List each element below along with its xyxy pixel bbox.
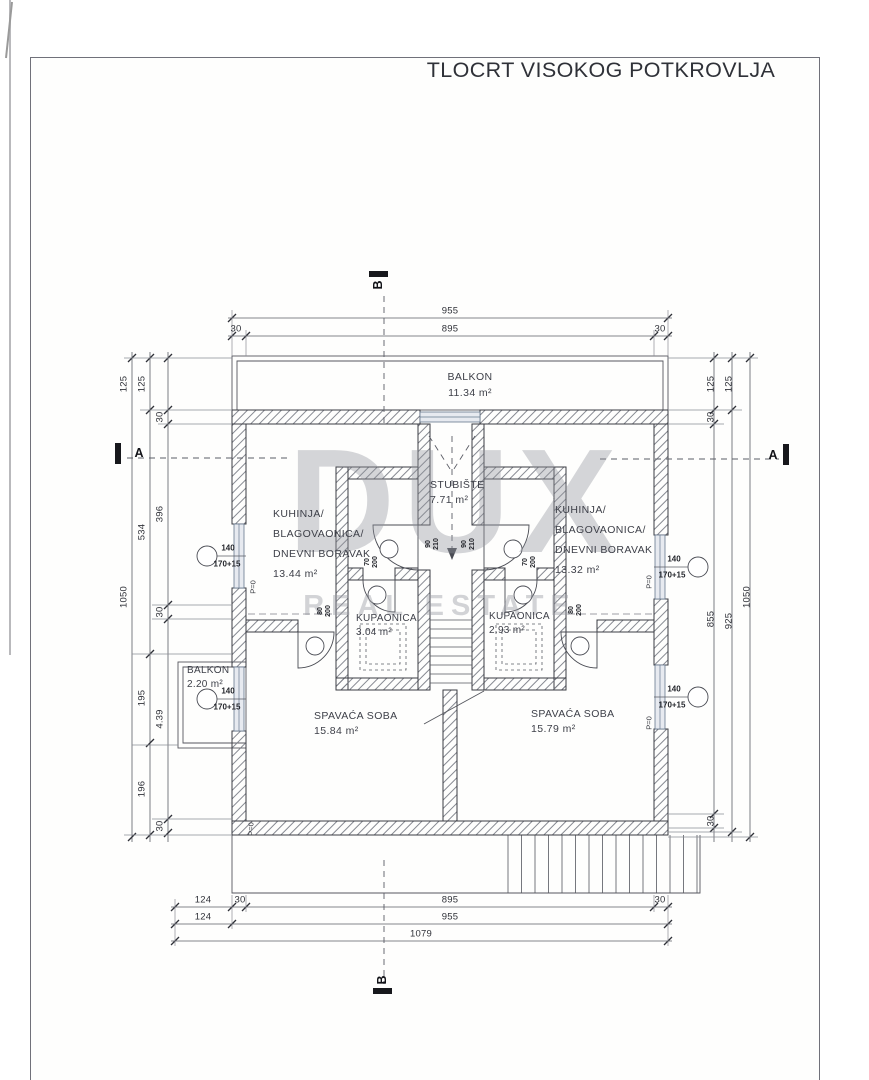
scanned-floor-plan-page: TLOCRT VISOKOG POTKROVLJA [0,0,869,1080]
floor-plan-drawing [0,0,869,1080]
page-title: TLOCRT VISOKOG POTKROVLJA [408,58,794,83]
section-lines [115,271,789,994]
scan-artifacts [6,0,12,655]
exterior-stairs [232,835,700,893]
walls [232,410,668,835]
